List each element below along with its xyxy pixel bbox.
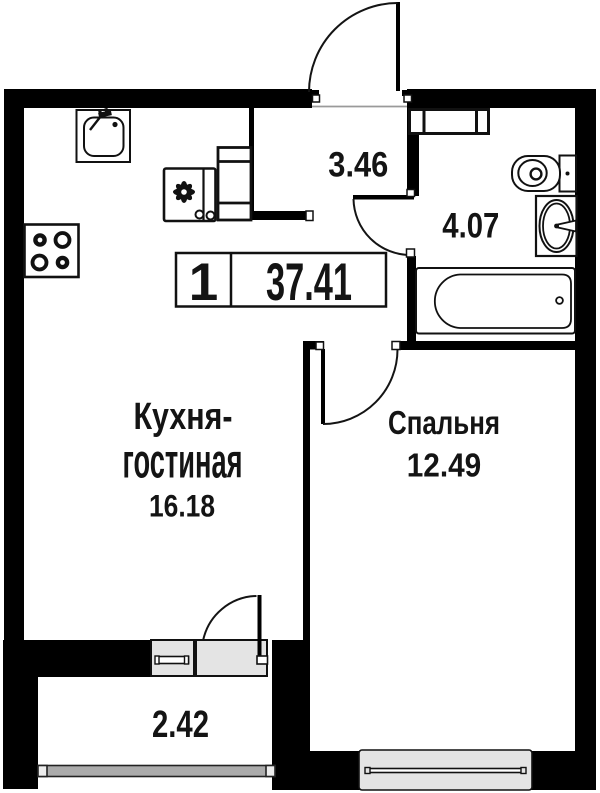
svg-text:2.42: 2.42 xyxy=(152,704,209,746)
svg-text:4.07: 4.07 xyxy=(442,207,499,246)
svg-text:1: 1 xyxy=(189,253,218,312)
svg-text:Спальня: Спальня xyxy=(388,405,500,442)
svg-text:Кухня-: Кухня- xyxy=(134,396,233,438)
svg-text:37.41: 37.41 xyxy=(266,253,352,312)
svg-text:3.46: 3.46 xyxy=(328,146,388,185)
svg-text:16.18: 16.18 xyxy=(149,487,215,523)
svg-text:гостиная: гостиная xyxy=(123,436,243,489)
svg-text:12.49: 12.49 xyxy=(407,448,482,485)
